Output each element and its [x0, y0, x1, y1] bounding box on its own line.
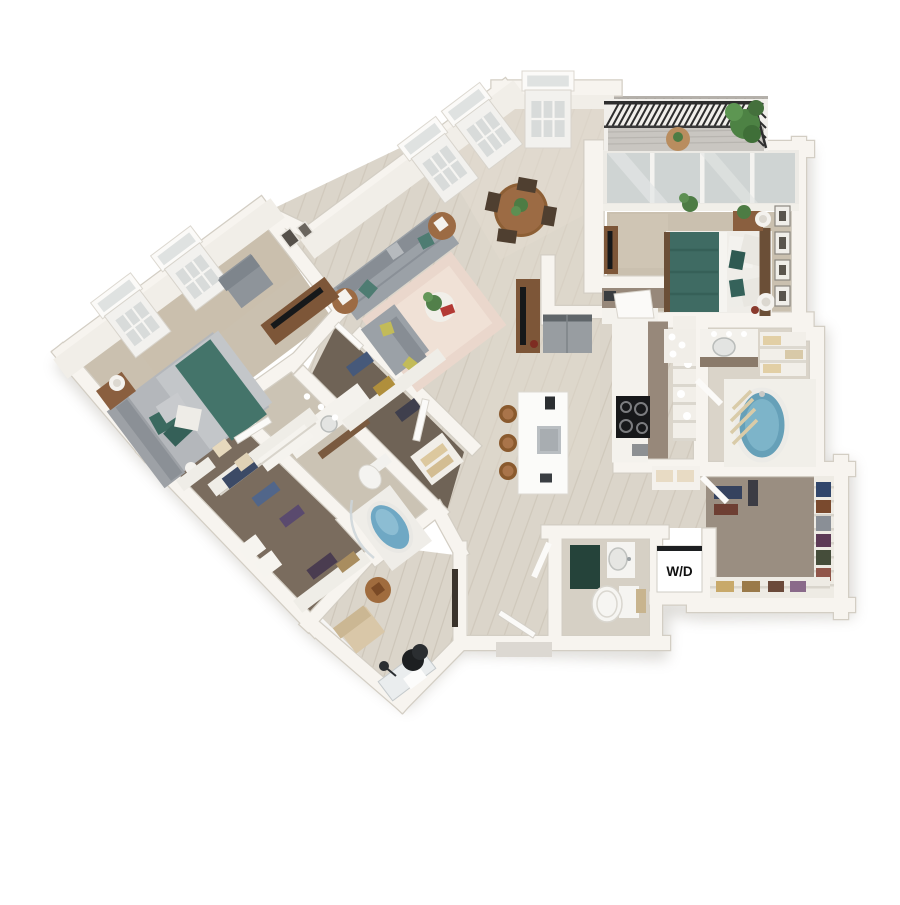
svg-text:W/D: W/D — [666, 564, 692, 579]
